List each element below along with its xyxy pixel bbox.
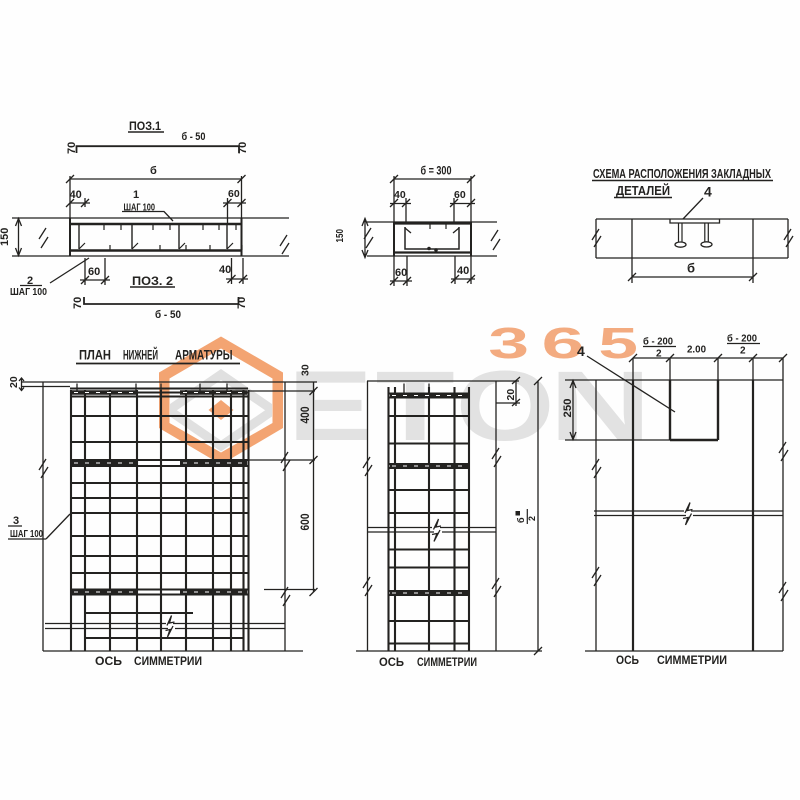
svg-text:150: 150 xyxy=(0,228,11,246)
svg-text:70: 70 xyxy=(236,297,248,309)
svg-text:4: 4 xyxy=(704,184,712,200)
svg-text:70: 70 xyxy=(66,142,78,154)
svg-text:б: б xyxy=(150,165,157,177)
svg-text:ДЕТАЛЕЙ: ДЕТАЛЕЙ xyxy=(616,183,670,198)
svg-text:2: 2 xyxy=(527,516,537,521)
svg-text:60: 60 xyxy=(395,267,407,279)
svg-text:600: 600 xyxy=(298,513,312,530)
svg-text:ПЛАН: ПЛАН xyxy=(79,347,111,363)
svg-text:б - 50: б - 50 xyxy=(182,131,206,143)
svg-text:400: 400 xyxy=(298,406,312,423)
svg-text:ПОЗ. 2: ПОЗ. 2 xyxy=(132,276,173,288)
svg-text:3: 3 xyxy=(13,515,19,527)
svg-text:ШАГ 100: ШАГ 100 xyxy=(10,528,43,540)
svg-text:40: 40 xyxy=(70,189,82,201)
svg-text:2: 2 xyxy=(740,346,746,357)
svg-text:б - 200: б - 200 xyxy=(727,333,757,345)
svg-text:ОСЬ: ОСЬ xyxy=(616,653,639,667)
svg-text:20: 20 xyxy=(505,389,517,401)
svg-text:40: 40 xyxy=(394,189,406,201)
svg-text:5: 5 xyxy=(598,318,638,368)
svg-text:ШАГ 100: ШАГ 100 xyxy=(10,286,47,298)
svg-text:O: O xyxy=(456,351,555,461)
svg-text:2.00: 2.00 xyxy=(687,345,706,356)
svg-text:3: 3 xyxy=(488,318,529,367)
svg-text:4: 4 xyxy=(577,343,585,359)
svg-text:б - 50: б - 50 xyxy=(155,309,181,321)
svg-text:б: б xyxy=(516,517,526,523)
svg-text:70: 70 xyxy=(237,142,249,154)
svg-text:б - 200: б - 200 xyxy=(643,336,673,348)
svg-text:40: 40 xyxy=(457,265,469,277)
svg-text:СИММЕТРИИ: СИММЕТРИИ xyxy=(134,654,202,668)
svg-text:60: 60 xyxy=(228,188,240,200)
svg-text:1: 1 xyxy=(133,189,139,201)
svg-text:б = 300: б = 300 xyxy=(421,166,452,178)
svg-text:20: 20 xyxy=(8,376,20,388)
svg-text:30: 30 xyxy=(300,364,312,376)
svg-text:70: 70 xyxy=(72,297,84,309)
svg-text:ОСЬ: ОСЬ xyxy=(95,654,122,668)
svg-text:СХЕМА РАСПОЛОЖЕНИЯ ЗАКЛАДНЫХ: СХЕМА РАСПОЛОЖЕНИЯ ЗАКЛАДНЫХ xyxy=(593,166,771,181)
svg-text:60: 60 xyxy=(454,189,466,201)
svg-text:НИЖНЕЙ: НИЖНЕЙ xyxy=(123,346,158,363)
svg-text:ОСЬ: ОСЬ xyxy=(379,655,404,669)
svg-text:ПОЗ.1: ПОЗ.1 xyxy=(129,121,162,133)
svg-text:150: 150 xyxy=(335,229,346,243)
svg-text:60: 60 xyxy=(88,266,100,278)
svg-text:СИММЕТРИИ: СИММЕТРИИ xyxy=(417,655,477,669)
svg-text:АРМАТУРЫ: АРМАТУРЫ xyxy=(175,347,233,363)
svg-text:СИММЕТРИИ: СИММЕТРИИ xyxy=(657,653,727,667)
svg-text:40: 40 xyxy=(219,264,231,276)
svg-text:250: 250 xyxy=(562,399,574,418)
svg-text:б: б xyxy=(687,261,695,276)
